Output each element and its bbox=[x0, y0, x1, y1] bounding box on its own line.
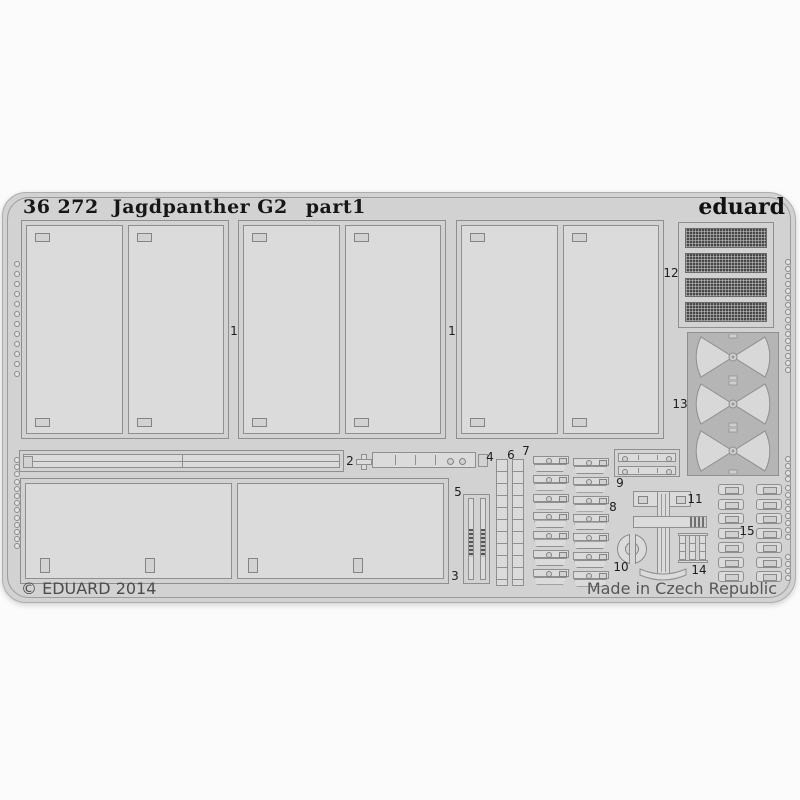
etch-mark bbox=[470, 233, 485, 242]
rivet-hole bbox=[586, 479, 592, 485]
engine-grille-part bbox=[678, 222, 774, 328]
clamp-part bbox=[533, 550, 571, 565]
product-photo: 36 272Jagdpanther G2part1 eduard bbox=[0, 0, 800, 800]
clamp-foot bbox=[574, 541, 607, 549]
rivet-hole bbox=[546, 571, 552, 577]
rivet-hole bbox=[447, 458, 454, 465]
clamp-tab bbox=[559, 458, 567, 464]
clamp-tab bbox=[599, 516, 607, 522]
sprocket-hole bbox=[785, 456, 791, 462]
clamp-part bbox=[533, 531, 571, 546]
clamp-part bbox=[573, 477, 611, 492]
etch-line bbox=[415, 455, 416, 465]
bottom-panel bbox=[25, 483, 232, 579]
etch-mark bbox=[252, 233, 267, 242]
hatch-panel bbox=[26, 225, 123, 434]
sprocket-hole bbox=[14, 493, 20, 499]
etch-mark bbox=[145, 558, 155, 573]
etch-line bbox=[395, 455, 396, 465]
clamp-part bbox=[573, 514, 611, 529]
part-label-13: 13 bbox=[672, 397, 687, 411]
etch-line bbox=[665, 494, 666, 572]
bowtie-shape bbox=[688, 334, 778, 380]
etch-mark bbox=[35, 418, 50, 427]
sprocket-hole bbox=[785, 345, 791, 351]
sprocket-hole bbox=[785, 527, 791, 533]
clamp-foot bbox=[574, 560, 607, 568]
etch-mark bbox=[248, 558, 258, 573]
bracket-part bbox=[718, 499, 744, 510]
bracket-part bbox=[718, 542, 744, 553]
sprocket-hole bbox=[785, 463, 791, 469]
clamp-tab bbox=[599, 535, 607, 541]
bracket-part bbox=[756, 499, 782, 510]
sprocket-hole bbox=[785, 554, 791, 560]
sprocket-hole bbox=[785, 324, 791, 330]
hatch-panel bbox=[563, 225, 660, 434]
rivet-hole bbox=[622, 469, 628, 475]
rivet-hole bbox=[459, 458, 466, 465]
clamp-tab bbox=[559, 533, 567, 539]
sprocket-hole bbox=[14, 281, 20, 287]
clamp-foot bbox=[534, 464, 567, 472]
sprocket-hole bbox=[785, 506, 791, 512]
rivet-hole bbox=[546, 552, 552, 558]
grille-mesh bbox=[685, 228, 767, 248]
etch-mark bbox=[252, 418, 267, 427]
etch-mark bbox=[354, 418, 369, 427]
hatch-panel-group bbox=[238, 220, 446, 439]
hatch-panel bbox=[461, 225, 558, 434]
part-label-3: 3 bbox=[451, 569, 459, 583]
sprocket-hole bbox=[14, 351, 20, 357]
clamp-column bbox=[533, 456, 571, 584]
segmented-strip bbox=[496, 459, 508, 586]
part-number: part1 bbox=[306, 196, 366, 218]
sprocket-hole bbox=[785, 499, 791, 505]
sprocket-hole bbox=[14, 486, 20, 492]
part-label-15: 15 bbox=[739, 524, 754, 538]
bracket-slot bbox=[725, 516, 739, 523]
hatch-panel bbox=[243, 225, 340, 434]
cleaning-rods-part bbox=[463, 494, 490, 584]
pe-fret-sheet: 36 272Jagdpanther G2part1 eduard bbox=[2, 192, 796, 603]
sprocket-hole bbox=[785, 302, 791, 308]
sprocket-hole bbox=[785, 259, 791, 265]
clamp-part bbox=[573, 458, 611, 473]
rivet-hole bbox=[586, 460, 592, 466]
clamp-foot bbox=[534, 483, 567, 491]
grate-bar bbox=[689, 535, 696, 561]
sprocket-hole bbox=[785, 309, 791, 315]
part-label-1: 1 bbox=[230, 324, 238, 338]
clamp-part bbox=[533, 512, 571, 527]
part-label-14: 14 bbox=[691, 563, 706, 577]
sprocket-hole bbox=[785, 317, 791, 323]
sprocket-hole bbox=[785, 331, 791, 337]
rivet-hole bbox=[586, 573, 592, 579]
clamp-part bbox=[533, 475, 571, 490]
part-label-10: 10 bbox=[613, 560, 628, 574]
etch-mark bbox=[137, 233, 152, 242]
sprocket-hole bbox=[14, 291, 20, 297]
clamp-tab bbox=[599, 554, 607, 560]
sprocket-hole bbox=[785, 568, 791, 574]
grate-bar bbox=[699, 535, 706, 561]
sprocket-hole bbox=[14, 457, 20, 463]
bracket-part bbox=[718, 557, 744, 568]
clamp-column bbox=[573, 458, 611, 586]
part-label-6: 6 bbox=[507, 448, 515, 462]
sprocket-hole bbox=[785, 266, 791, 272]
rivet-hole bbox=[586, 498, 592, 504]
long-strip-part bbox=[19, 450, 344, 472]
clamp-foot bbox=[534, 520, 567, 528]
clamp-tab bbox=[559, 552, 567, 558]
bracket-slot bbox=[763, 531, 777, 538]
sprocket-hole bbox=[785, 353, 791, 359]
sprocket-hole bbox=[14, 261, 20, 267]
clamp-tab bbox=[559, 496, 567, 502]
clamp-foot bbox=[534, 558, 567, 566]
clamp-tab bbox=[559, 514, 567, 520]
clamp-foot bbox=[574, 466, 607, 474]
clamp-foot bbox=[534, 577, 567, 585]
etch-mark bbox=[353, 558, 363, 573]
sprocket-hole bbox=[14, 331, 20, 337]
sprocket-hole bbox=[785, 520, 791, 526]
product-name: Jagdpanther G2 bbox=[113, 196, 288, 218]
etch-mark bbox=[572, 233, 587, 242]
part-label-12: 12 bbox=[663, 266, 678, 280]
bracket-slot bbox=[725, 502, 739, 509]
bracket-slot bbox=[725, 560, 739, 567]
grille-mesh bbox=[685, 278, 767, 298]
sprocket-hole bbox=[14, 529, 20, 535]
bracket-part bbox=[756, 557, 782, 568]
sprocket-hole bbox=[785, 360, 791, 366]
etch-mark bbox=[354, 233, 369, 242]
part-label-4: 4 bbox=[486, 450, 494, 464]
bracket-slot bbox=[763, 487, 777, 494]
bracket-column bbox=[756, 484, 782, 582]
etch-mark bbox=[676, 496, 686, 504]
etch-line bbox=[435, 455, 436, 465]
grille-mesh bbox=[685, 302, 767, 322]
sprocket-hole bbox=[785, 561, 791, 567]
rod bbox=[468, 498, 474, 580]
sprocket-hole bbox=[785, 281, 791, 287]
bowtie-shape bbox=[688, 428, 778, 474]
rod-holder-part bbox=[372, 452, 476, 468]
bracket-part bbox=[756, 528, 782, 539]
etch-mark bbox=[40, 558, 50, 573]
clamp-foot bbox=[534, 539, 567, 547]
bracket-part bbox=[718, 513, 744, 524]
bowtie-fan-part bbox=[687, 332, 779, 476]
rivet-hole bbox=[666, 456, 672, 462]
sprocket-hole bbox=[785, 295, 791, 301]
clamp-foot bbox=[574, 485, 607, 493]
etch-mark bbox=[470, 418, 485, 427]
hinge-bar bbox=[618, 466, 676, 475]
sprocket-hole bbox=[14, 522, 20, 528]
etch-mark bbox=[356, 459, 372, 465]
hatch-panel-group bbox=[21, 220, 229, 439]
rivet-hole bbox=[622, 456, 628, 462]
sprocket-hole bbox=[785, 288, 791, 294]
sprocket-hole bbox=[785, 575, 791, 581]
bottom-panel-group bbox=[20, 478, 449, 584]
etch-line bbox=[638, 468, 639, 473]
bracket-slot bbox=[763, 560, 777, 567]
copyright-text: © EDUARD 2014 bbox=[21, 579, 156, 598]
sprocket-hole bbox=[14, 311, 20, 317]
etch-line bbox=[661, 494, 662, 572]
clamp-part bbox=[533, 569, 571, 584]
strip-end-cap bbox=[23, 456, 33, 468]
clamp-foot bbox=[574, 522, 607, 530]
made-in-text: Made in Czech Republic bbox=[587, 579, 777, 598]
part-label-5: 5 bbox=[454, 485, 462, 499]
sprocket-hole bbox=[14, 479, 20, 485]
sprocket-hole bbox=[785, 338, 791, 344]
hatch-panel bbox=[345, 225, 442, 434]
brand-logo: eduard bbox=[698, 194, 785, 220]
rivet-hole bbox=[666, 469, 672, 475]
sprocket-hole bbox=[14, 371, 20, 377]
bracket-slot bbox=[725, 487, 739, 494]
clamp-part bbox=[533, 456, 571, 471]
etch-line bbox=[182, 455, 183, 467]
bracket-part bbox=[756, 484, 782, 495]
clamp-part bbox=[573, 533, 611, 548]
sprocket-hole bbox=[785, 513, 791, 519]
clamp-foot bbox=[534, 502, 567, 510]
ribbed-hinge bbox=[690, 517, 706, 527]
clamp-part bbox=[573, 552, 611, 567]
part-label-8: 8 bbox=[609, 500, 617, 514]
bottom-panel bbox=[237, 483, 444, 579]
sprocket-hole bbox=[785, 367, 791, 373]
clamp-tab bbox=[559, 477, 567, 483]
rivet-hole bbox=[546, 477, 552, 483]
bracket-slot bbox=[763, 516, 777, 523]
hatch-panel-group bbox=[456, 220, 664, 439]
fret-title: 36 272Jagdpanther G2part1 bbox=[23, 196, 366, 218]
rivet-hole bbox=[586, 554, 592, 560]
catalog-number: 36 272 bbox=[23, 196, 99, 218]
rod bbox=[480, 498, 486, 580]
etch-mark bbox=[638, 496, 648, 504]
etch-line bbox=[638, 455, 639, 460]
clamp-tab bbox=[599, 460, 607, 466]
hatch-panel bbox=[128, 225, 225, 434]
bracket-slot bbox=[725, 545, 739, 552]
sprocket-hole bbox=[14, 471, 20, 477]
sprocket-hole bbox=[14, 515, 20, 521]
sprocket-hole bbox=[785, 485, 791, 491]
cross-clasp-part bbox=[356, 454, 372, 470]
bracket-part bbox=[756, 542, 782, 553]
part-label-1: 1 bbox=[448, 324, 456, 338]
part-label-7: 7 bbox=[522, 444, 530, 458]
bowtie-shape bbox=[688, 381, 778, 427]
lock-cross-bar bbox=[633, 516, 707, 528]
sprocket-hole bbox=[785, 534, 791, 540]
sprocket-hole bbox=[785, 476, 791, 482]
etch-line bbox=[657, 468, 658, 473]
part-label-9: 9 bbox=[616, 476, 624, 490]
grate-part bbox=[678, 533, 708, 563]
hinge-bars-part bbox=[614, 449, 680, 477]
sprocket-hole bbox=[785, 492, 791, 498]
sprocket-hole bbox=[785, 273, 791, 279]
bracket-part bbox=[718, 484, 744, 495]
bracket-slot bbox=[725, 531, 739, 538]
part-label-11: 11 bbox=[687, 492, 702, 506]
bracket-slot bbox=[763, 502, 777, 509]
clamp-part bbox=[573, 496, 611, 511]
clamp-tab bbox=[599, 479, 607, 485]
clamp-tab bbox=[599, 498, 607, 504]
clamp-tab bbox=[559, 571, 567, 577]
rod-ribbing bbox=[469, 529, 473, 557]
clamp-tab bbox=[599, 573, 607, 579]
part-label-2: 2 bbox=[346, 454, 354, 468]
bracket-slot bbox=[763, 545, 777, 552]
rod-ribbing bbox=[481, 529, 485, 557]
etch-mark bbox=[35, 233, 50, 242]
clamp-part bbox=[533, 494, 571, 509]
lock-vertical-bar bbox=[657, 491, 670, 575]
hinge-bar bbox=[618, 453, 676, 462]
sprocket-hole bbox=[14, 301, 20, 307]
bracket-part bbox=[756, 513, 782, 524]
clamp-foot bbox=[574, 504, 607, 512]
etch-line bbox=[657, 455, 658, 460]
sprocket-hole bbox=[14, 361, 20, 367]
sprocket-hole bbox=[785, 470, 791, 476]
grate-bar bbox=[679, 535, 686, 561]
sprocket-hole bbox=[14, 271, 20, 277]
segmented-strip bbox=[512, 459, 524, 586]
grille-mesh bbox=[685, 253, 767, 273]
sprocket-hole bbox=[14, 341, 20, 347]
sprocket-hole bbox=[14, 321, 20, 327]
rivet-hole bbox=[546, 458, 552, 464]
rivet-hole bbox=[546, 496, 552, 502]
etch-mark bbox=[572, 418, 587, 427]
etch-mark bbox=[137, 418, 152, 427]
